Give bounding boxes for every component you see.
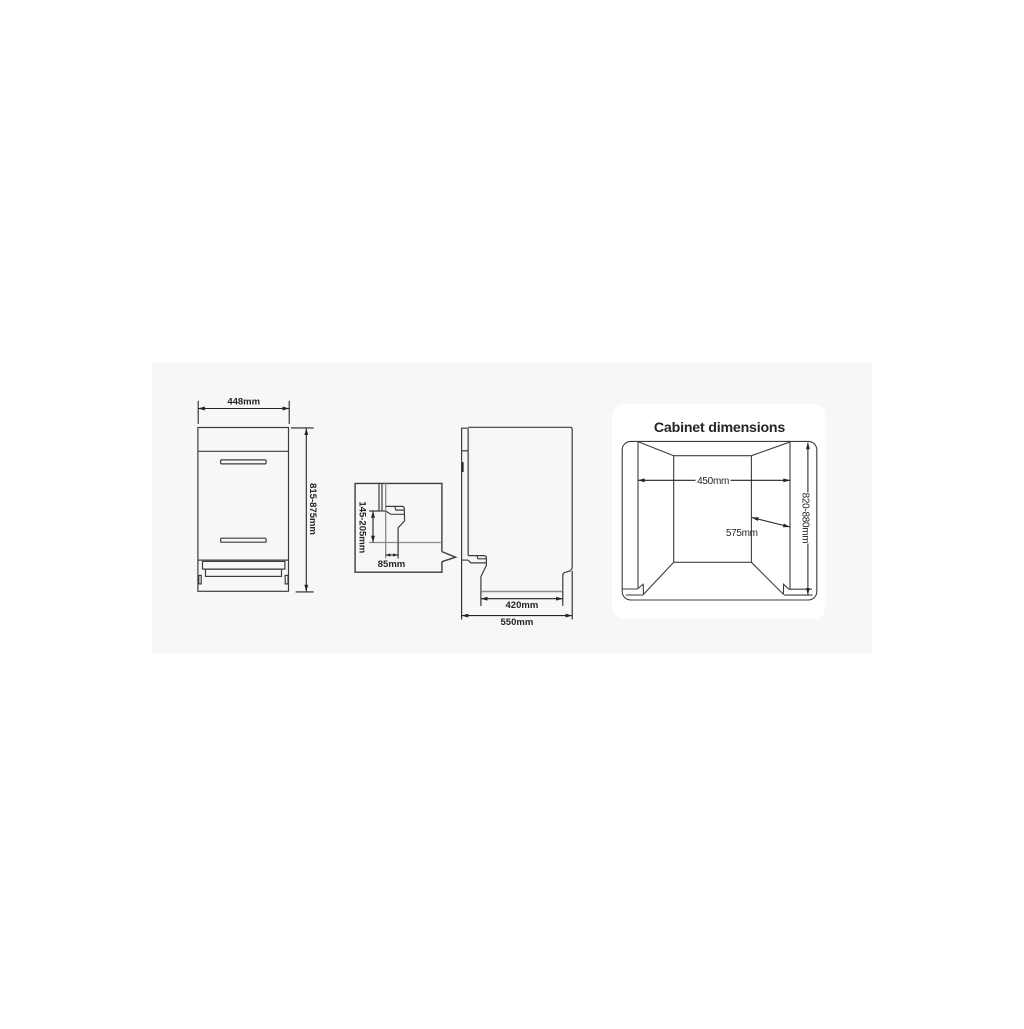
svg-text:450mm: 450mm bbox=[697, 476, 729, 487]
svg-text:448mm: 448mm bbox=[227, 397, 260, 408]
svg-text:550mm: 550mm bbox=[501, 617, 534, 628]
svg-text:820-880mm: 820-880mm bbox=[800, 493, 811, 544]
svg-text:Cabinet dimensions: Cabinet dimensions bbox=[654, 420, 786, 436]
svg-text:145-205mm: 145-205mm bbox=[356, 501, 367, 553]
svg-text:420mm: 420mm bbox=[506, 600, 539, 611]
svg-text:815-875mm: 815-875mm bbox=[307, 483, 318, 535]
svg-text:85mm: 85mm bbox=[378, 559, 405, 570]
svg-text:575mm: 575mm bbox=[726, 528, 758, 539]
